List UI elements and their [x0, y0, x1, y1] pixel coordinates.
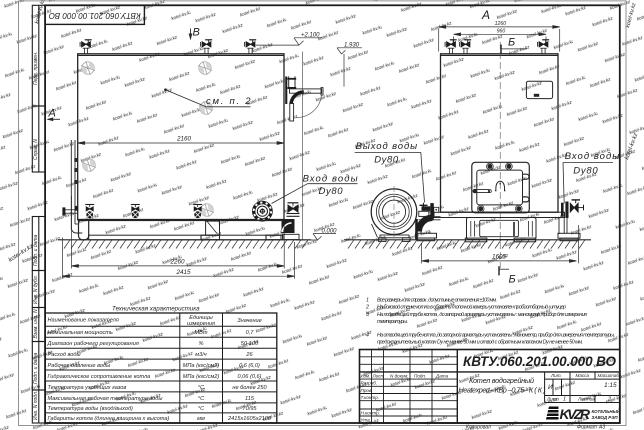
- svg-text:Heatexpert– КВр –0,75– К ( К ): Heatexpert– КВр –0,75– К ( К ): [459, 386, 546, 395]
- svg-text:2: 2: [607, 397, 611, 403]
- svg-text:Dy80: Dy80: [573, 165, 598, 176]
- svg-text:2415х1605х2100: 2415х1605х2100: [227, 416, 272, 422]
- svg-text:Диапазон рабочего регулировани: Диапазон рабочего регулирования: [47, 341, 139, 347]
- svg-text:Инв. N подл.: Инв. N подл.: [33, 391, 39, 420]
- svg-text:Вход воды: Вход воды: [303, 173, 358, 184]
- svg-text:Расход воды: Расход воды: [48, 352, 81, 358]
- svg-text:Масштаб: Масштаб: [598, 373, 620, 378]
- svg-text:Выход воды: Выход воды: [356, 141, 418, 152]
- svg-text:50-100: 50-100: [241, 341, 259, 347]
- svg-text:1.930: 1.930: [344, 42, 360, 48]
- svg-text:измерения: измерения: [187, 321, 215, 327]
- svg-text:KVZR: KVZR: [560, 406, 591, 422]
- svg-text:3: 3: [366, 312, 369, 318]
- svg-text:Взам. инв. N: Взам. инв. N: [33, 309, 39, 339]
- svg-text:КВТУ.060.201.00.000 ВО: КВТУ.060.201.00.000 ВО: [49, 11, 141, 20]
- svg-text:Б: Б: [508, 37, 515, 49]
- svg-text:0,06 (0,6): 0,06 (0,6): [238, 374, 262, 380]
- svg-text:115: 115: [245, 396, 255, 402]
- svg-text:Т.контр.: Т.контр.: [361, 395, 380, 400]
- svg-text:Дата: Дата: [435, 373, 449, 378]
- svg-text:КВТУ.060.201.00.000 ВО: КВТУ.060.201.00.000 ВО: [463, 354, 616, 369]
- svg-text:Максимальная рабочая температу: Максимальная рабочая температура воды: [48, 396, 163, 402]
- svg-text:Лист: Лист: [546, 397, 559, 402]
- svg-text:Подп. и дата: Подп. и дата: [33, 234, 39, 266]
- svg-text:Н.контр.: Н.контр.: [361, 410, 380, 415]
- svg-text:Все размеры для справок , допу: Все размеры для справок , допустимые отк…: [377, 297, 497, 303]
- svg-text:м3/ч: м3/ч: [195, 352, 206, 358]
- svg-text:предохранительный клапан Dy н: предохранительный клапан Dy не менее 50 …: [377, 339, 583, 346]
- svg-text:Листов: Листов: [577, 397, 595, 402]
- svg-text:2415: 2415: [176, 269, 192, 276]
- svg-text:1: 1: [366, 297, 369, 303]
- svg-text:0.000: 0.000: [322, 228, 338, 234]
- svg-text:Техническая характеристика: Техническая характеристика: [112, 306, 200, 313]
- svg-text:На боковой стенке котла в обла: На боковой стенке котла в области топочн…: [377, 304, 566, 311]
- svg-text:Пров.: Пров.: [361, 388, 373, 393]
- svg-text:%: %: [199, 341, 204, 347]
- svg-text:Справ. N: Справ. N: [33, 139, 39, 160]
- svg-text:Инв. N дубл.: Инв. N дубл.: [33, 275, 39, 304]
- svg-text:Копировал: Копировал: [466, 425, 491, 430]
- svg-text:N докум.: N докум.: [390, 373, 409, 378]
- svg-text:Dy80: Dy80: [374, 154, 399, 165]
- svg-text:Перв. примен.: Перв. примен.: [33, 52, 39, 85]
- svg-text:2: 2: [365, 305, 369, 311]
- svg-text:2260: 2260: [170, 259, 186, 266]
- svg-text:Рабочее давление воды: Рабочее давление воды: [48, 363, 111, 369]
- svg-text:И: И: [548, 384, 553, 391]
- svg-text:0,7: 0,7: [246, 330, 255, 336]
- svg-text:1605: 1605: [492, 254, 507, 261]
- svg-text:Изм.: Изм.: [361, 373, 371, 378]
- svg-text:0,6 (6,0): 0,6 (6,0): [239, 363, 260, 369]
- svg-text:Утв.: Утв.: [361, 417, 371, 422]
- svg-text:Масса: Масса: [576, 373, 590, 378]
- svg-text:+2.100: +2.100: [301, 33, 320, 39]
- svg-text:МПа (кгс/см2): МПа (кгс/см2): [183, 374, 220, 380]
- svg-text:4: 4: [366, 332, 369, 338]
- svg-text:Б: Б: [509, 274, 516, 286]
- svg-text:Гидравлическое сопротивление к: Гидравлическое сопротивление котла: [48, 374, 151, 380]
- svg-text:А3: А3: [598, 425, 605, 430]
- svg-text:не более 250: не более 250: [232, 385, 267, 391]
- svg-text:На подводящей трубе котла ,: На подводящей трубе котла , до запорной …: [377, 311, 587, 318]
- svg-text:Котел водогрейный: Котел водогрейный: [469, 376, 534, 385]
- svg-text:МПа (кгс/см2): МПа (кгс/см2): [183, 363, 220, 369]
- svg-text:В: В: [193, 27, 200, 39]
- svg-text:1:15: 1:15: [604, 382, 617, 389]
- svg-text:А: А: [48, 108, 56, 120]
- svg-text:Температура уходящих газов: Температура уходящих газов: [48, 385, 127, 391]
- svg-text:°С: °С: [198, 385, 205, 391]
- svg-text:Вход воды: Вход воды: [565, 151, 620, 162]
- svg-text:Разраб.: Разраб.: [361, 381, 378, 386]
- svg-text:Подп.: Подп.: [414, 373, 426, 378]
- svg-text:Температура воды (вход/выход): Температура воды (вход/выход): [48, 406, 134, 412]
- svg-text:ЗАВОД РЭП: ЗАВОД РЭП: [592, 415, 619, 420]
- svg-text:Наименование показателя: Наименование показателя: [48, 318, 119, 324]
- svg-text:Значение: Значение: [237, 318, 262, 324]
- svg-text:Формат: Формат: [577, 425, 597, 430]
- svg-text:Подп. и дата: Подп. и дата: [33, 352, 39, 384]
- svg-text:Лист: Лист: [372, 373, 385, 378]
- svg-text:26: 26: [245, 352, 253, 358]
- svg-text:КОТЕЛЬНЫЙ: КОТЕЛЬНЫЙ: [592, 409, 621, 414]
- svg-text:А: А: [481, 8, 490, 22]
- svg-text:мм: мм: [197, 416, 205, 422]
- svg-text:°С: °С: [198, 396, 205, 402]
- svg-text:1260: 1260: [495, 21, 507, 27]
- svg-text:1: 1: [563, 397, 566, 403]
- svg-text:Лит.: Лит.: [550, 373, 562, 378]
- svg-text:70/95: 70/95: [243, 406, 258, 412]
- svg-text:Габариты котла (длинна х ширин: Габариты котла (длинна х ширина х высота…: [48, 416, 170, 422]
- svg-text:2160: 2160: [176, 136, 192, 143]
- svg-text:температуры.: температуры.: [377, 319, 408, 325]
- svg-text:МВт: МВт: [194, 330, 207, 336]
- svg-text:На отводящей трубе котла ,до з: На отводящей трубе котла ,до запорной ар…: [377, 331, 615, 338]
- svg-text:°С: °С: [198, 406, 205, 412]
- svg-text:Номинальная мощность: Номинальная мощность: [48, 330, 113, 336]
- svg-text:960: 960: [497, 28, 506, 34]
- svg-text:Dy80: Dy80: [319, 186, 344, 197]
- svg-text:см. п. 2: см. п. 2: [206, 96, 251, 107]
